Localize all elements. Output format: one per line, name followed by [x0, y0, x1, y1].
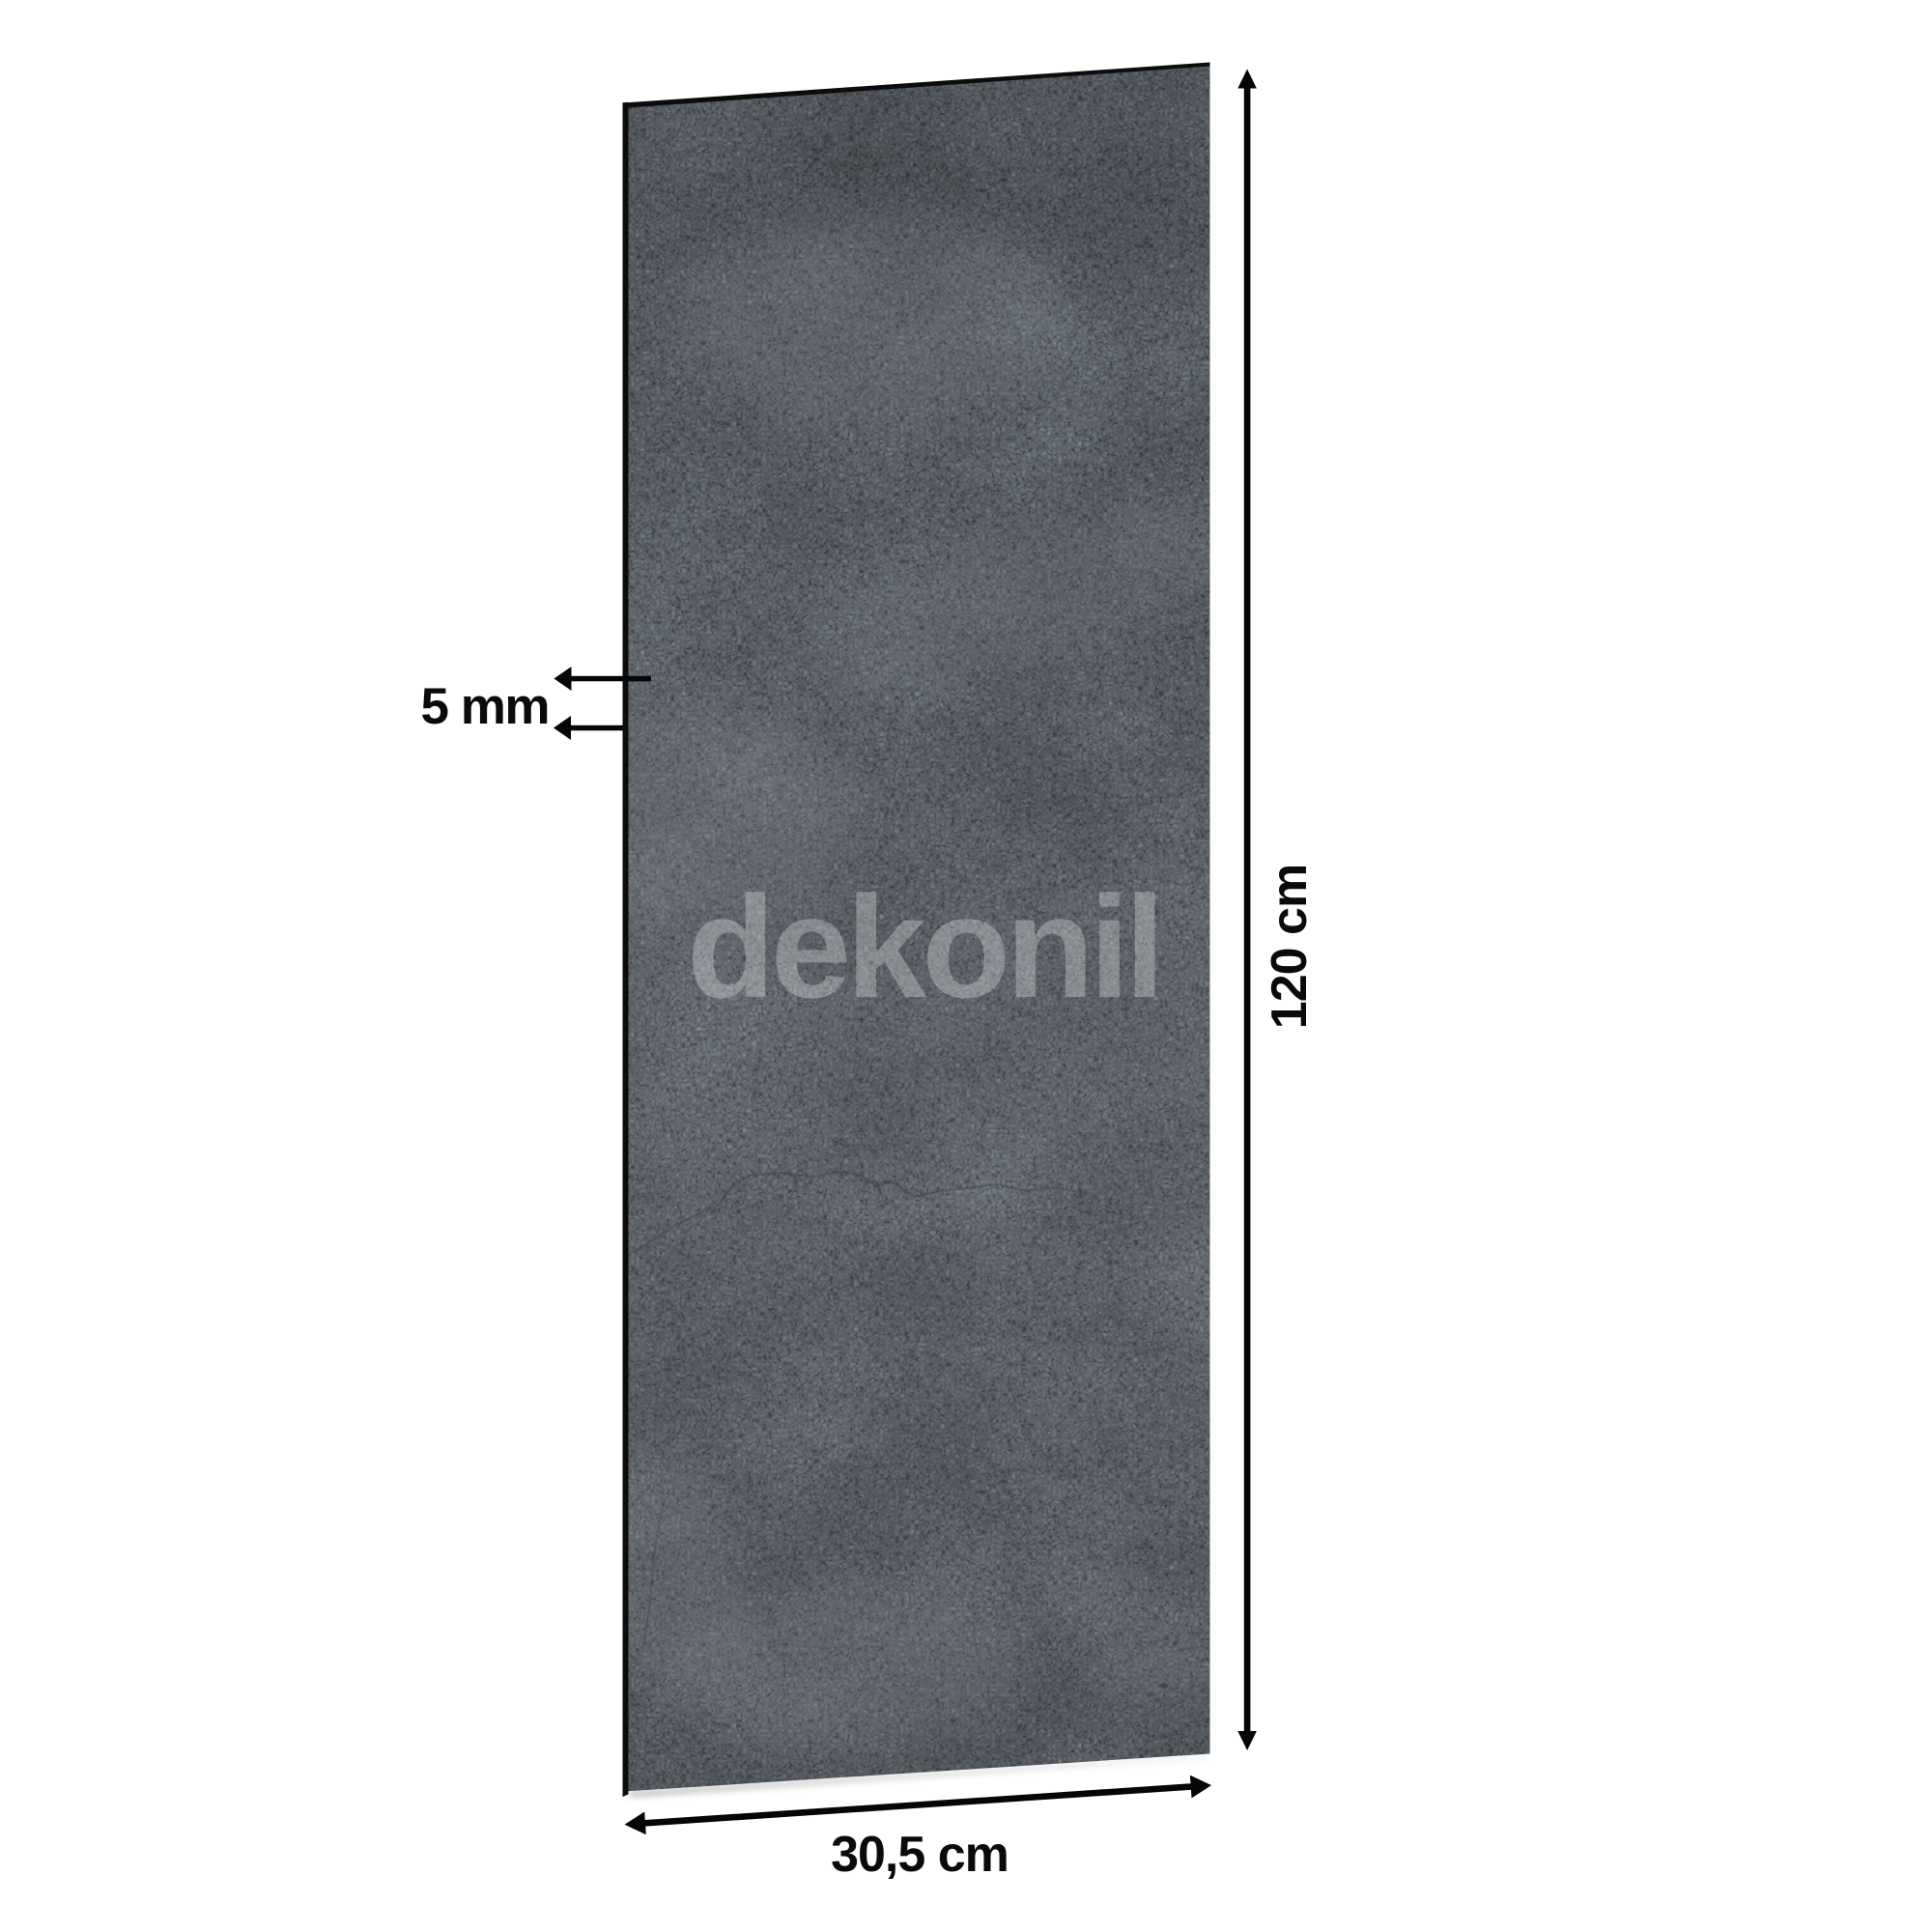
svg-text:dekonil: dekonil: [687, 866, 1160, 1028]
svg-text:120 cm: 120 cm: [1262, 865, 1318, 1029]
svg-text:30,5 cm: 30,5 cm: [831, 1827, 1009, 1883]
svg-text:5 mm: 5 mm: [421, 678, 549, 735]
